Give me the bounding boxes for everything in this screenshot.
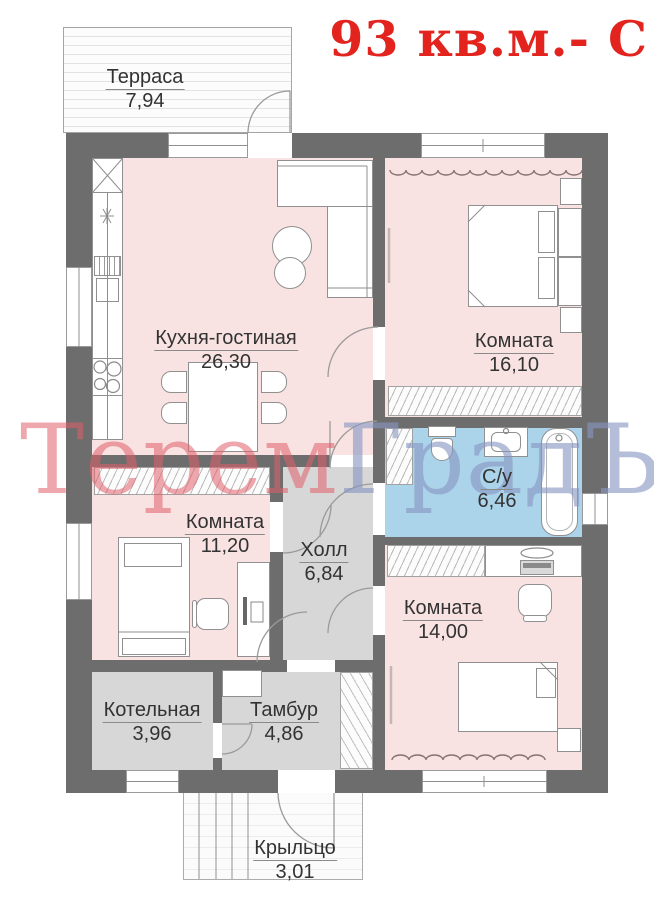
desk-icon — [237, 562, 270, 657]
door-opening-room16 — [373, 327, 385, 380]
wall-bottom-4 — [547, 770, 608, 793]
wall-v2-b — [270, 552, 283, 660]
room-label-tambour: Тамбур 4,86 — [249, 699, 319, 745]
stove-icon — [92, 358, 123, 396]
door-opening-terrace — [248, 133, 292, 158]
wall-bottom-2 — [179, 770, 278, 793]
office-chair-icon — [196, 598, 229, 630]
bed-footboard-icon — [122, 638, 186, 655]
door-opening-boiler — [213, 723, 222, 758]
watermark-part1: Терем — [20, 404, 339, 516]
room-label-kitchen: Кухня-гостиная 26,30 — [154, 327, 298, 373]
window-room14-bottom — [422, 770, 547, 793]
wall-top-2 — [292, 133, 421, 158]
window-boiler-bottom — [126, 770, 179, 793]
pillow-icon — [124, 543, 182, 567]
office-chair-icon — [518, 584, 552, 617]
headboard-icon — [558, 208, 582, 257]
nightstand-icon — [560, 307, 582, 333]
wall-h3 — [385, 537, 582, 545]
boiler-unit-icon — [222, 670, 262, 697]
room-label-boiler: Котельная 3,96 — [103, 699, 202, 745]
wall-v1-a — [373, 158, 385, 327]
chair-back-icon — [523, 615, 547, 622]
pillow-icon — [536, 668, 556, 698]
wall-bottom-3 — [335, 770, 422, 793]
room-label-terrace: Терраса 7,94 — [106, 66, 185, 112]
wardrobe-room14-icon — [387, 545, 485, 577]
window-room16-top — [421, 133, 545, 158]
watermark: ТеремГрадЪ — [20, 412, 654, 508]
dining-chair-icon — [261, 371, 287, 393]
wall-left-1 — [66, 133, 92, 267]
room-label-porch: Крыльцо 3,01 — [253, 837, 337, 883]
wall-v1-c — [373, 535, 385, 586]
door-opening-tambour — [287, 660, 335, 672]
wall-v3-a — [213, 672, 222, 723]
closet-tambour-icon — [340, 672, 373, 769]
printer-icon — [520, 560, 554, 575]
dining-chair-icon — [161, 371, 187, 393]
pillow-icon — [538, 257, 555, 299]
wall-right-2 — [582, 525, 608, 792]
door-opening-room14 — [373, 586, 385, 635]
wall-left-3 — [66, 600, 92, 792]
sofa-icon — [327, 206, 373, 298]
wall-v1-d — [373, 635, 385, 770]
door-opening-entrance — [278, 770, 335, 793]
room-label-hall: Холл 6,84 — [299, 539, 348, 585]
chair-back-icon — [192, 600, 197, 628]
nightstand-icon — [557, 728, 581, 752]
room-label-bathroom: С/у 6,46 — [478, 466, 517, 512]
nightstand-icon — [560, 178, 582, 205]
fridge-icon — [92, 158, 123, 193]
wall-h4-b — [335, 660, 373, 672]
pillow-icon — [538, 211, 555, 253]
headboard-icon — [558, 257, 582, 306]
wall-v3-b — [213, 758, 222, 770]
oven-icon — [96, 278, 119, 302]
room-label-room11: Комната 11,20 — [185, 511, 265, 557]
coffee-table-icon — [274, 257, 306, 289]
oven-vent-icon — [94, 256, 121, 276]
floor-plan: ТеремГрадЪ Терраса 7,94 Кухня-гостиная 2… — [0, 0, 654, 900]
room-label-room14: Комната 14,00 — [403, 597, 483, 643]
page-title: 93 кв.м.- С — [329, 10, 648, 68]
room-label-room16: Комната 16,10 — [474, 330, 554, 376]
sofa-icon — [277, 160, 373, 207]
window-room11-left — [66, 523, 92, 600]
window-kitchen-left — [66, 267, 92, 347]
room-14-area — [385, 545, 582, 770]
window-kitchen-top — [168, 133, 248, 158]
wall-bottom-1 — [66, 770, 126, 793]
